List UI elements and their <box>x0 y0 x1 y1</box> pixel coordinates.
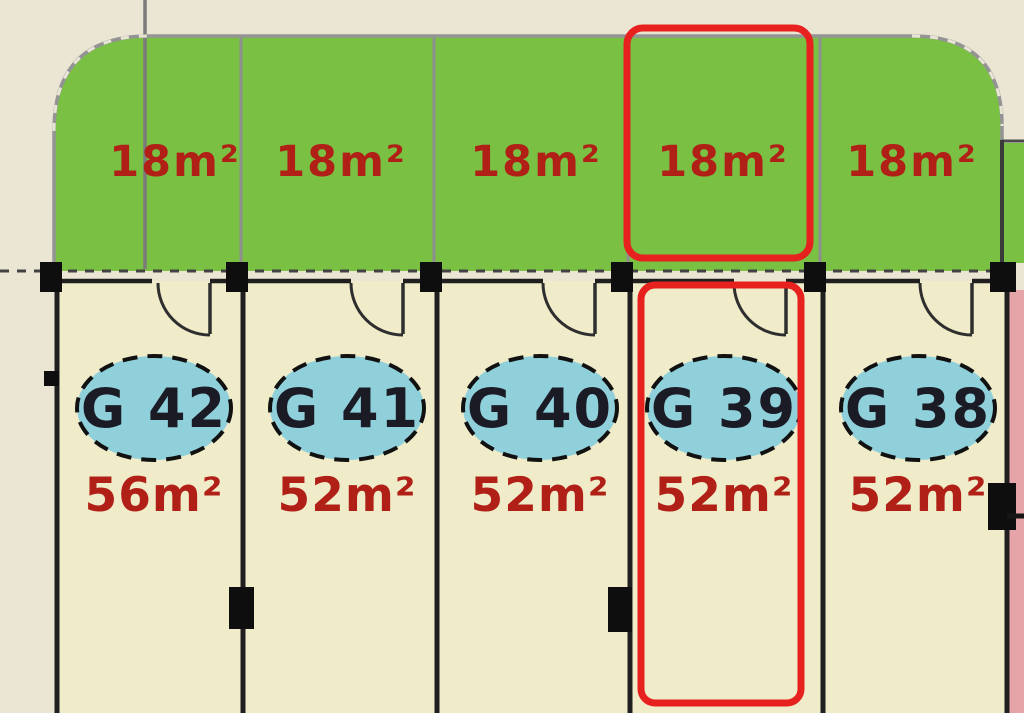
unit-area-g42: 56m² <box>85 468 224 523</box>
unit-label-g40: G 40 <box>467 377 613 440</box>
unit-area-labels: 56m² 52m² 52m² 52m² 52m² <box>85 468 988 523</box>
garden-area-g40: 18m² <box>470 137 601 187</box>
unit-label-g38: G 38 <box>845 377 991 440</box>
garden-area-g41: 18m² <box>275 137 406 187</box>
floor-plan: G 42 G 41 G 40 G 39 G 38 56m² 52m² 52m² … <box>0 0 1024 713</box>
wall-marker-left <box>44 371 59 386</box>
garden-area-labels: 18m² 18m² 18m² 18m² 18m² <box>109 137 977 187</box>
post <box>40 262 62 292</box>
post <box>420 262 442 292</box>
post <box>226 262 248 292</box>
wall-marker-g40-g39 <box>608 587 632 632</box>
wall-marker-g42-g41 <box>229 587 254 629</box>
post <box>990 262 1016 292</box>
unit-label-g39: G 39 <box>651 377 797 440</box>
unit-label-g41: G 41 <box>274 377 420 440</box>
post <box>611 262 633 292</box>
garden-area-g42: 18m² <box>109 137 240 187</box>
unit-id-labels: G 42 G 41 G 40 G 39 G 38 <box>81 377 991 440</box>
garden-area-g39: 18m² <box>657 137 788 187</box>
neighbor-garden <box>1004 143 1024 263</box>
wall-marker-right <box>988 483 1016 530</box>
unit-area-g40: 52m² <box>471 468 610 523</box>
unit-area-g38: 52m² <box>849 468 988 523</box>
garden-area-g38: 18m² <box>846 137 977 187</box>
post <box>804 262 826 292</box>
unit-label-g42: G 42 <box>81 377 227 440</box>
unit-area-g39: 52m² <box>655 468 794 523</box>
unit-area-g41: 52m² <box>278 468 417 523</box>
